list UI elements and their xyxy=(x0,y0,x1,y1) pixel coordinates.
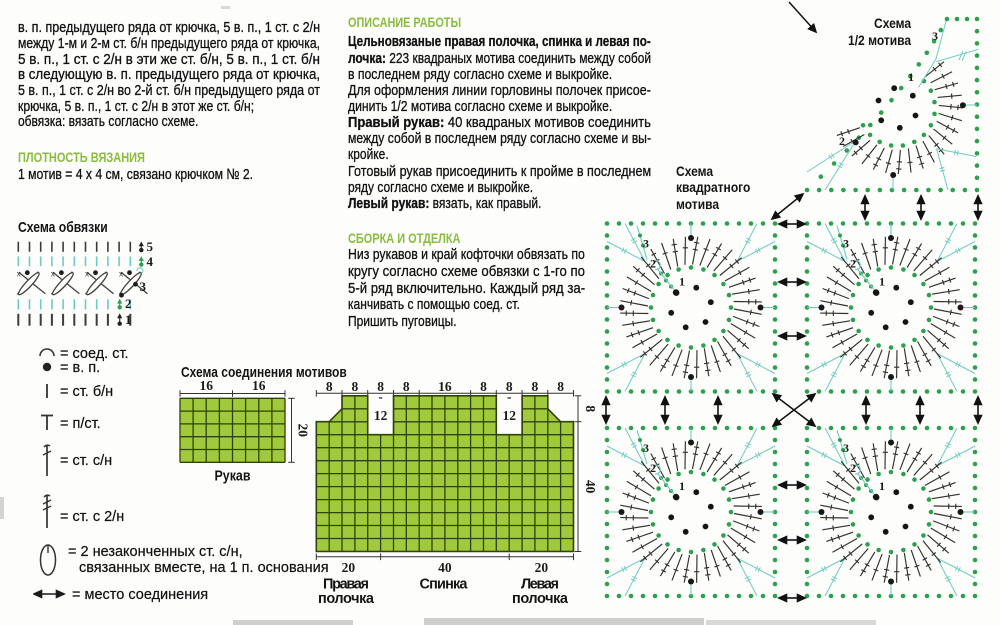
svg-text:20: 20 xyxy=(535,560,549,575)
svg-text:12: 12 xyxy=(502,408,516,423)
svg-text:3: 3 xyxy=(140,279,147,294)
svg-text:-: - xyxy=(378,389,383,404)
svg-text:8: 8 xyxy=(480,379,487,394)
svg-text:16: 16 xyxy=(438,379,452,394)
svg-text:Рукав: Рукав xyxy=(215,469,251,485)
svg-text:x: x xyxy=(51,270,55,279)
svg-text:5: 5 xyxy=(147,239,154,254)
svg-text:40: 40 xyxy=(583,480,598,494)
svg-text:40: 40 xyxy=(438,560,452,575)
svg-text:8: 8 xyxy=(326,379,333,394)
svg-text:1: 1 xyxy=(125,312,132,327)
svg-text:8: 8 xyxy=(557,379,564,394)
svg-text:20: 20 xyxy=(342,560,356,575)
svg-text:12: 12 xyxy=(374,408,388,423)
svg-text:8: 8 xyxy=(532,379,539,394)
svg-text:полочка: полочка xyxy=(318,591,375,607)
svg-text:полочка: полочка xyxy=(512,591,569,607)
svg-text:4: 4 xyxy=(147,254,154,269)
svg-text:16: 16 xyxy=(252,378,266,393)
svg-text:20: 20 xyxy=(296,424,311,438)
svg-text:2: 2 xyxy=(125,296,132,311)
svg-text:8: 8 xyxy=(352,379,359,394)
svg-text:x: x xyxy=(17,270,21,279)
svg-text:-: - xyxy=(507,389,512,404)
svg-text:Спинка: Спинка xyxy=(420,577,469,593)
svg-text:8: 8 xyxy=(403,379,410,394)
svg-text:16: 16 xyxy=(199,378,213,393)
svg-text:x: x xyxy=(85,270,89,279)
svg-text:x: x xyxy=(119,270,123,279)
svg-text:8: 8 xyxy=(583,405,598,412)
